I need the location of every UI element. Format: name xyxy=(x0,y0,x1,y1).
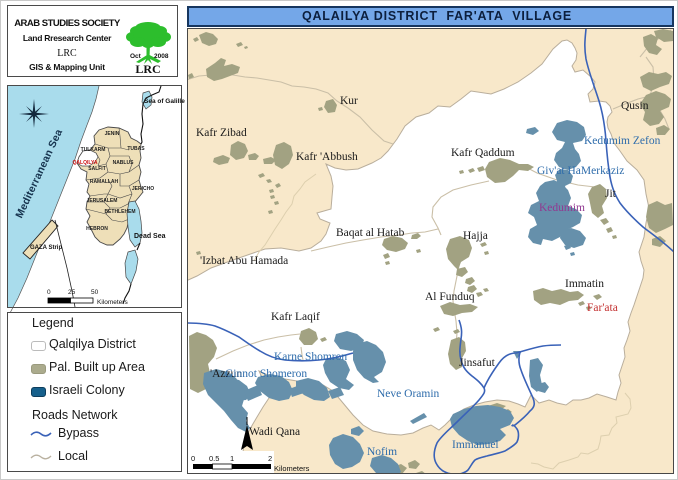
svg-text:Jinsafut: Jinsafut xyxy=(459,357,496,369)
svg-text:Ginnot Shomeron: Ginnot Shomeron xyxy=(225,368,307,380)
svg-text:JENIN: JENIN xyxy=(105,131,120,137)
svg-text:SALFIT: SALFIT xyxy=(88,166,106,172)
svg-text:Karne Shomron: Karne Shomron xyxy=(274,351,347,363)
svg-text:Kafr Qaddum: Kafr Qaddum xyxy=(451,147,515,159)
svg-text:Kedumim Zefon: Kedumim Zefon xyxy=(584,135,661,147)
svg-text:GAZA Strip: GAZA Strip xyxy=(30,245,62,251)
svg-text:JERICHO: JERICHO xyxy=(132,186,154,192)
svg-text:Kafr Zibad: Kafr Zibad xyxy=(196,127,247,139)
svg-text:Immatin: Immatin xyxy=(565,278,604,290)
svg-text:1: 1 xyxy=(230,454,234,463)
svg-text:Dead Sea: Dead Sea xyxy=(134,233,166,240)
svg-text:Nofim: Nofim xyxy=(367,446,397,458)
svg-text:2008: 2008 xyxy=(154,53,169,60)
svg-text:'Izbat Abu Hamada: 'Izbat Abu Hamada xyxy=(200,255,288,267)
svg-text:50: 50 xyxy=(91,289,99,296)
svg-text:0: 0 xyxy=(47,289,51,296)
svg-text:Immanuel: Immanuel xyxy=(452,439,499,451)
svg-text:Neve Oramin: Neve Oramin xyxy=(377,388,440,400)
svg-text:NABLUS: NABLUS xyxy=(113,160,134,166)
svg-text:LRC: LRC xyxy=(135,62,160,76)
svg-text:Kedumim: Kedumim xyxy=(539,202,585,214)
svg-text:Jit: Jit xyxy=(605,188,617,200)
svg-text:Kur: Kur xyxy=(340,95,358,107)
svg-text:Sea of Galille: Sea of Galille xyxy=(144,98,185,105)
svg-text:BETHLEHEM: BETHLEHEM xyxy=(104,209,135,215)
svg-text:RAMALLAH: RAMALLAH xyxy=(90,179,119,185)
svg-text:JERUSALEM: JERUSALEM xyxy=(87,198,118,204)
svg-text:0.5: 0.5 xyxy=(209,454,219,463)
svg-text:HEBRON: HEBRON xyxy=(86,226,108,232)
svg-text:25: 25 xyxy=(68,289,76,296)
svg-text:Al Funduq: Al Funduq xyxy=(425,291,475,303)
svg-text:Kilometers: Kilometers xyxy=(274,464,310,473)
svg-text:QALQILYA: QALQILYA xyxy=(73,160,98,166)
svg-text:Kilometers: Kilometers xyxy=(97,299,128,306)
svg-text:Kafr Laqif: Kafr Laqif xyxy=(271,311,320,323)
svg-text:TULKARM: TULKARM xyxy=(81,147,106,153)
svg-text:Giv'at HaMerkaziz: Giv'at HaMerkaziz xyxy=(537,165,624,177)
svg-text:Oct: Oct xyxy=(130,53,142,60)
svg-text:Baqat al Hatab: Baqat al Hatab xyxy=(336,227,405,239)
svg-text:Far'ata: Far'ata xyxy=(587,302,618,314)
svg-text:TUBAS: TUBAS xyxy=(127,146,145,152)
svg-text:Kafr 'Abbush: Kafr 'Abbush xyxy=(296,151,358,163)
svg-text:Hajja: Hajja xyxy=(463,230,488,242)
svg-text:Qusin: Qusin xyxy=(621,100,649,112)
svg-text:Wadi Qana: Wadi Qana xyxy=(249,426,300,438)
svg-text:0: 0 xyxy=(191,454,195,463)
svg-text:2: 2 xyxy=(268,454,272,463)
